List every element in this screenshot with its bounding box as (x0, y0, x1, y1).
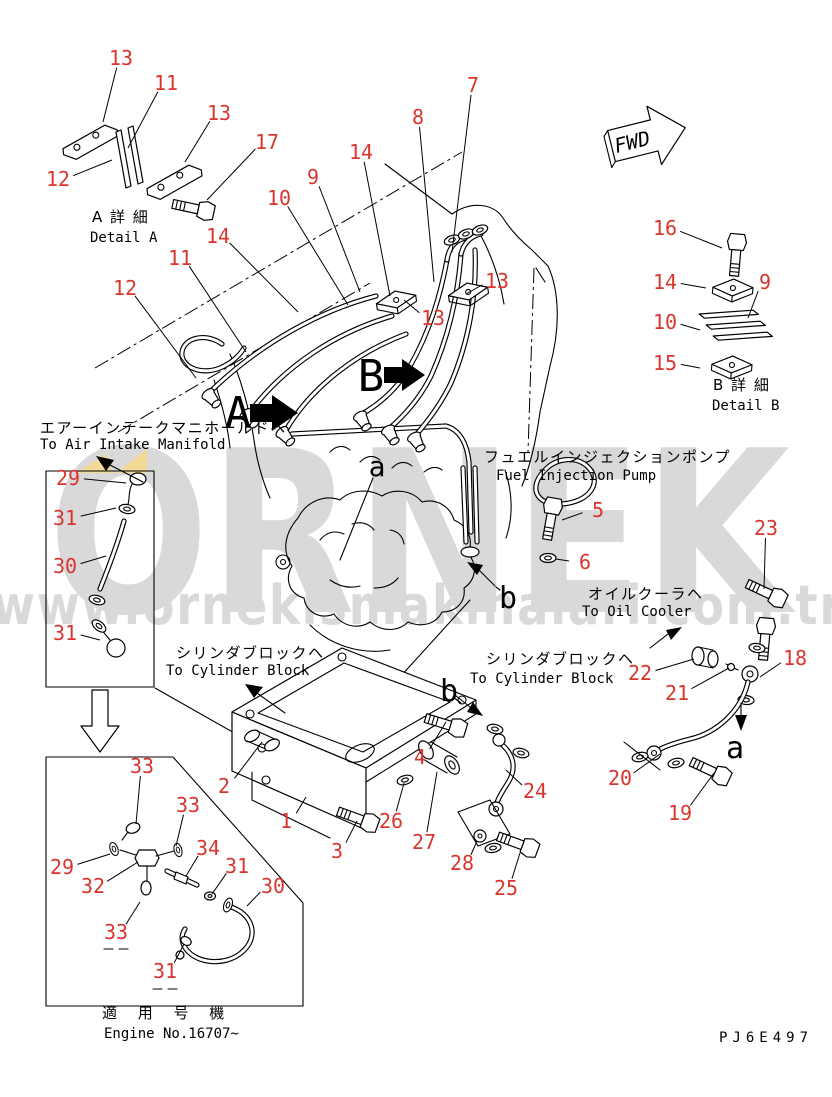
bolt-16 (725, 233, 748, 276)
callout-27: 27 (412, 830, 436, 854)
callout-28: 28 (450, 851, 474, 875)
view-letter-a: a (726, 731, 744, 766)
callout-9: 9 (759, 270, 771, 294)
air-intake-label-en: To Air Intake Manifold (40, 438, 225, 453)
callout-33: 33 (176, 793, 200, 817)
callout-leader-15 (681, 364, 700, 368)
callout-33: 33 (130, 754, 154, 778)
cylinder-block-left-label-jp: シリンダブロックヘ (176, 645, 325, 662)
callout-16: 16 (653, 216, 677, 240)
fuel-pump-label-jp: フュエルインジェクションポンプ (484, 449, 731, 466)
air-intake-label-jp: エアーインテークマニホールドヘ (40, 420, 287, 437)
callout-leader-32 (107, 862, 138, 881)
callout-30: 30 (261, 874, 285, 898)
fuel-pump-label-en: Fuel Injection Pump (496, 469, 656, 484)
callout-leader-27 (427, 772, 437, 832)
detail-a-label-en: Detail A (90, 231, 157, 246)
callout-leader-25 (512, 853, 520, 879)
callout-26: 26 (379, 809, 403, 833)
callout-leader-13 (185, 121, 210, 162)
callout-18: 18 (783, 646, 807, 670)
callout-30: 30 (53, 554, 77, 578)
callout-leader-21 (691, 668, 729, 689)
detail-b-label-en: Detail B (712, 399, 779, 414)
callout-7: 7 (467, 73, 479, 97)
callout-8: 8 (412, 105, 424, 129)
oil-cooler-label-en: To Oil Cooler (582, 605, 692, 620)
callout-10: 10 (653, 310, 677, 334)
detail-b-label-jp: B 詳 細 (713, 377, 770, 394)
watermark-url: www.ornekismakinalari.com.tr (0, 574, 832, 637)
applicable-machine-label-en: Engine No.16707~ (104, 1027, 239, 1042)
bolt-25 (495, 827, 541, 859)
oil-cooler-label-jp: オイルクーラヘ (588, 586, 704, 603)
callout-31: 31 (225, 854, 249, 878)
callout-leader-16 (680, 231, 722, 248)
view-letter-B: B (358, 351, 385, 402)
callout-21: 21 (665, 681, 689, 705)
callout-leader-26 (396, 783, 404, 812)
callout-leader-3 (346, 821, 357, 843)
callout-11: 11 (168, 246, 192, 270)
callout-13: 13 (485, 269, 509, 293)
fwd-arrow: FWD (599, 99, 692, 177)
callout-leader-33 (176, 815, 184, 846)
callout-29: 29 (50, 855, 74, 879)
callout-34: 34 (196, 836, 220, 860)
callout-17: 17 (255, 130, 279, 154)
callout-leader-10 (288, 206, 348, 305)
callout-leader-29 (77, 854, 110, 864)
callout-3: 3 (331, 839, 343, 863)
callout-leader-14 (681, 283, 706, 288)
view-letter-b: b (440, 674, 458, 709)
cylinder-block-right-label-en: To Cylinder Block (470, 672, 613, 687)
view-b-arrow (384, 359, 425, 391)
callout-31: 31 (53, 506, 77, 530)
callout-10: 10 (267, 186, 291, 210)
callout-13: 13 (421, 306, 445, 330)
pipe-clamp (375, 288, 418, 316)
callout-1: 1 (280, 809, 292, 833)
callout-leader-13 (404, 300, 419, 313)
part-code: PJ6E497 (719, 1031, 813, 1046)
view-letter-a: a (369, 450, 386, 483)
callout-24: 24 (523, 779, 547, 803)
callout-29: 29 (56, 466, 80, 490)
callout-leader-11 (128, 92, 158, 148)
callout-2: 2 (218, 774, 230, 798)
callout-leader-33 (136, 776, 140, 824)
detail-link-arrow (81, 690, 119, 752)
callout-23: 23 (754, 516, 778, 540)
callout-13: 13 (109, 46, 133, 70)
detail-a-label-jp: A 詳 細 (92, 209, 149, 226)
callout-5: 5 (592, 498, 604, 522)
callout-leader-10 (681, 324, 700, 330)
callout-12: 12 (113, 276, 137, 300)
callout-leader-14 (230, 243, 298, 312)
callout-32: 32 (81, 874, 105, 898)
callout-12: 12 (46, 167, 70, 191)
callout-15: 15 (653, 351, 677, 375)
diagram-canvas: ORNEK www.ornekismakinalari.com.tr (0, 0, 832, 1097)
detail-b-parts (699, 233, 773, 380)
applicable-machine-label-jp: 適 用 号 機 (102, 1005, 232, 1022)
callout-leader-8 (420, 127, 434, 282)
callout-13: 13 (207, 101, 231, 125)
callout-19: 19 (668, 801, 692, 825)
callout-leader-19 (690, 773, 714, 805)
callout-14: 14 (349, 140, 373, 164)
callout-33: 33 (104, 920, 128, 944)
callout-14: 14 (653, 270, 677, 294)
bolt-17 (171, 195, 216, 222)
callout-4: 4 (414, 745, 426, 769)
cylinder-block-right-label-jp: シリンダブロックヘ (486, 651, 635, 668)
cylinder-block-left-label-en: To Cylinder Block (166, 664, 309, 679)
callout-31: 31 (53, 621, 77, 645)
callout-11: 11 (154, 71, 178, 95)
callout-leader-17 (207, 149, 255, 200)
callout-leader-30 (247, 892, 260, 906)
parts-diagram-stage: ORNEK www.ornekismakinalari.com.tr (0, 0, 832, 1097)
callout-14: 14 (206, 224, 230, 248)
callout-20: 20 (608, 766, 632, 790)
callout-6: 6 (579, 550, 591, 574)
callout-leader-13 (103, 68, 117, 122)
view-letter-b: b (499, 581, 517, 616)
callout-leader-14 (364, 162, 390, 296)
callout-leader-33 (126, 902, 140, 924)
callout-leader-12 (73, 160, 112, 176)
callout-25: 25 (494, 876, 518, 900)
callout-leader-9 (319, 186, 360, 292)
washer-6 (540, 554, 556, 563)
callout-31: 31 (153, 959, 177, 983)
callout-leader-12 (135, 296, 196, 378)
callout-9: 9 (307, 165, 319, 189)
